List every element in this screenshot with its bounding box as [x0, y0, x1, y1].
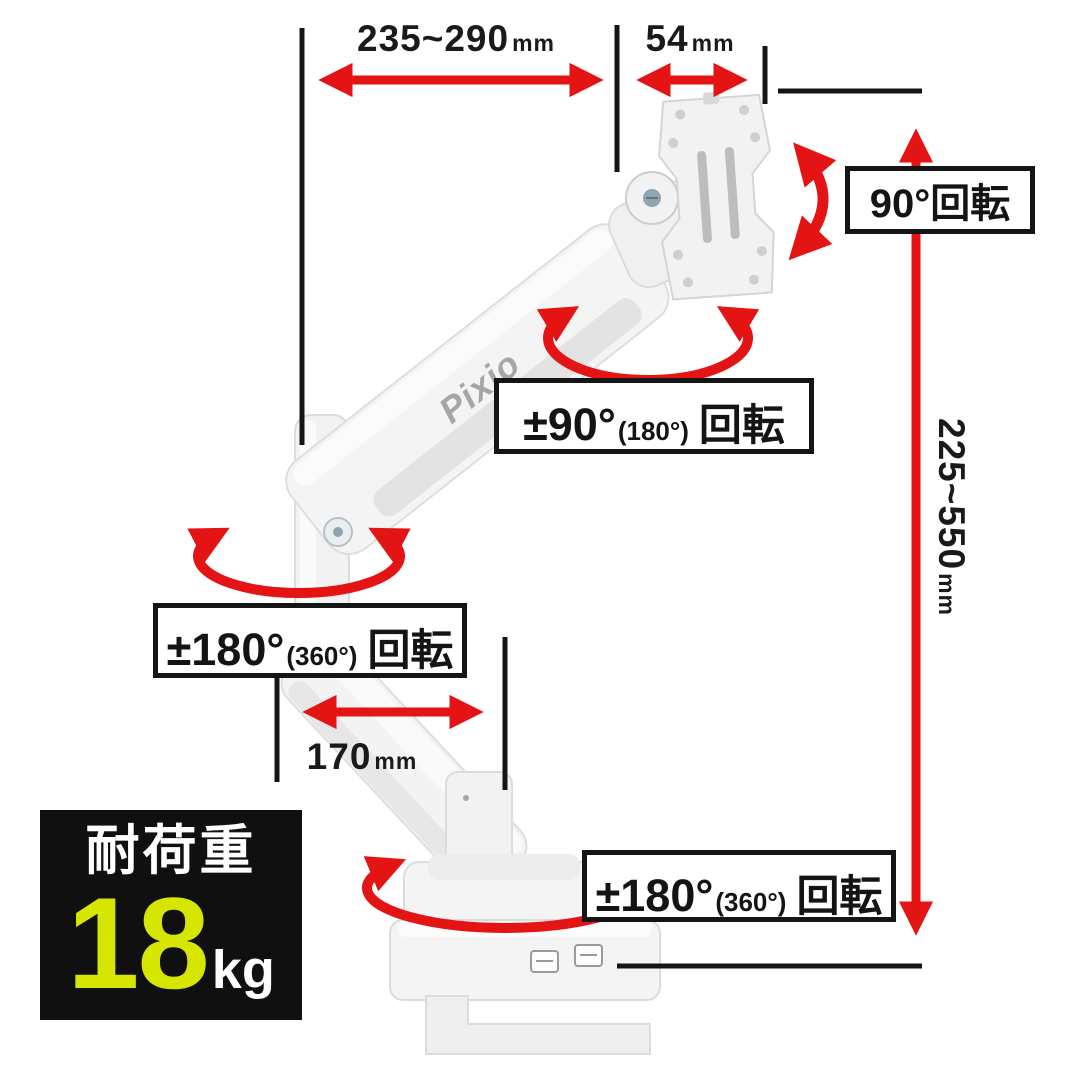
elbow-rotation-paren: (180°): [618, 416, 689, 447]
dim-height-value: 225~550: [930, 418, 972, 570]
head-rotation-label: 90°回転: [845, 166, 1035, 234]
load-capacity-row: 18 kg: [67, 875, 275, 1012]
base-rotation-main: ±180°: [596, 870, 714, 922]
dim-offset-unit: mm: [374, 748, 417, 775]
load-capacity-badge: 耐荷重 18 kg: [40, 810, 302, 1020]
elbow-rotation-suffix: 回転: [699, 391, 785, 453]
c-clamp: [426, 996, 650, 1054]
dim-vesa-label: 54 mm: [615, 18, 765, 60]
dim-vesa-value: 54: [645, 18, 688, 60]
dim-offset-label: 170 mm: [287, 736, 437, 778]
base-rotation-suffix: 回転: [796, 862, 882, 924]
elbow-rotation-label: ±90° (180°) 回転: [494, 378, 814, 454]
dim-reach-value: 235~290: [357, 18, 509, 60]
dim-reach-label: 235~290 mm: [300, 18, 612, 60]
dim-reach-unit: mm: [512, 30, 555, 57]
shoulder-rotation-main: ±180°: [167, 624, 285, 676]
dim-height-label: 225~550 mm: [930, 418, 972, 616]
dim-vesa-unit: mm: [692, 30, 735, 57]
shoulder-rotation-paren: (360°): [286, 641, 357, 672]
base-rotation-label: ±180° (360°) 回転: [582, 850, 896, 922]
base-clamp: [390, 920, 660, 1054]
base-rotation-paren: (360°): [715, 887, 786, 918]
dim-offset-value: 170: [307, 736, 372, 778]
shoulder-rotation-label: ±180° (360°) 回転: [153, 603, 467, 678]
elbow-rotation-main: ±90°: [523, 399, 616, 451]
head-screw: [626, 172, 678, 224]
shoulder-screw: [324, 518, 352, 546]
dim-height-unit: mm: [933, 573, 960, 616]
head-rotation-arrow: [800, 155, 823, 248]
head-rotation-text: 90°回転: [870, 171, 1011, 229]
load-capacity-unit: kg: [212, 939, 275, 1001]
load-capacity-value: 18: [67, 875, 208, 1012]
page-root: Pixio: [0, 0, 1080, 1075]
shoulder-rotation-suffix: 回転: [367, 616, 453, 678]
